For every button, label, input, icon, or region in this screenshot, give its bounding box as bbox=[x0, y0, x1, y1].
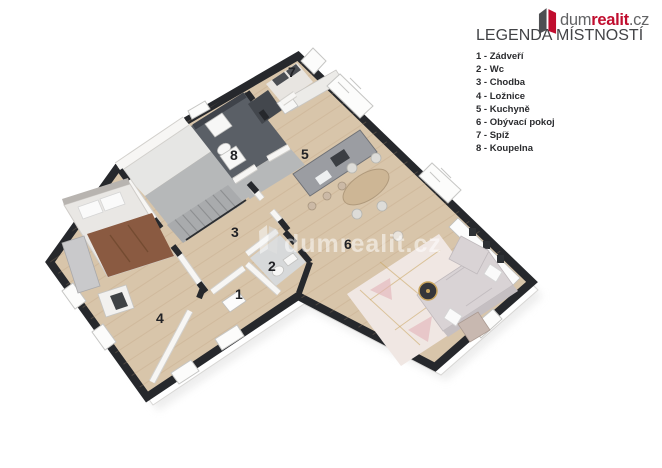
dining-chair bbox=[347, 163, 357, 173]
legend-item-7: 7 - Spíž bbox=[476, 129, 643, 142]
room-label-6: 6 bbox=[344, 236, 352, 252]
room-label-3: 3 bbox=[231, 224, 239, 240]
floorplan-page: dumrealit.cz 1 2 3 4 5 6 7 8 dumrealit.c… bbox=[0, 0, 662, 468]
dining-chair bbox=[377, 201, 387, 211]
legend-title: LEGENDA MÍSTNOSTÍ bbox=[476, 27, 643, 45]
room-label-4: 4 bbox=[156, 310, 164, 326]
legend-item-8: 8 - Koupelna bbox=[476, 142, 643, 155]
legend-item-5: 5 - Kuchyně bbox=[476, 103, 643, 116]
legend-item-3: 3 - Chodba bbox=[476, 76, 643, 89]
room-label-8: 8 bbox=[230, 147, 238, 163]
dining-chair bbox=[352, 209, 362, 219]
room-label-5: 5 bbox=[301, 146, 309, 162]
room-label-2: 2 bbox=[268, 258, 276, 274]
room-label-7: 7 bbox=[288, 64, 296, 80]
legend-item-6: 6 - Obývací pokoj bbox=[476, 116, 643, 129]
legend-item-4: 4 - Ložnice bbox=[476, 90, 643, 103]
legend: LEGENDA MÍSTNOSTÍ 1 - Zádveří 2 - Wc 3 -… bbox=[476, 27, 643, 156]
bar-stool bbox=[338, 182, 346, 190]
bar-stool bbox=[323, 192, 331, 200]
legend-item-2: 2 - Wc bbox=[476, 63, 643, 76]
legend-item-1: 1 - Zádveří bbox=[476, 50, 643, 63]
legend-items: 1 - Zádveří 2 - Wc 3 - Chodba 4 - Ložnic… bbox=[476, 50, 643, 156]
watermark-text: dumrealit.cz bbox=[284, 230, 442, 258]
bar-stool bbox=[308, 202, 316, 210]
dining-chair bbox=[371, 153, 381, 163]
room-label-1: 1 bbox=[235, 286, 243, 302]
